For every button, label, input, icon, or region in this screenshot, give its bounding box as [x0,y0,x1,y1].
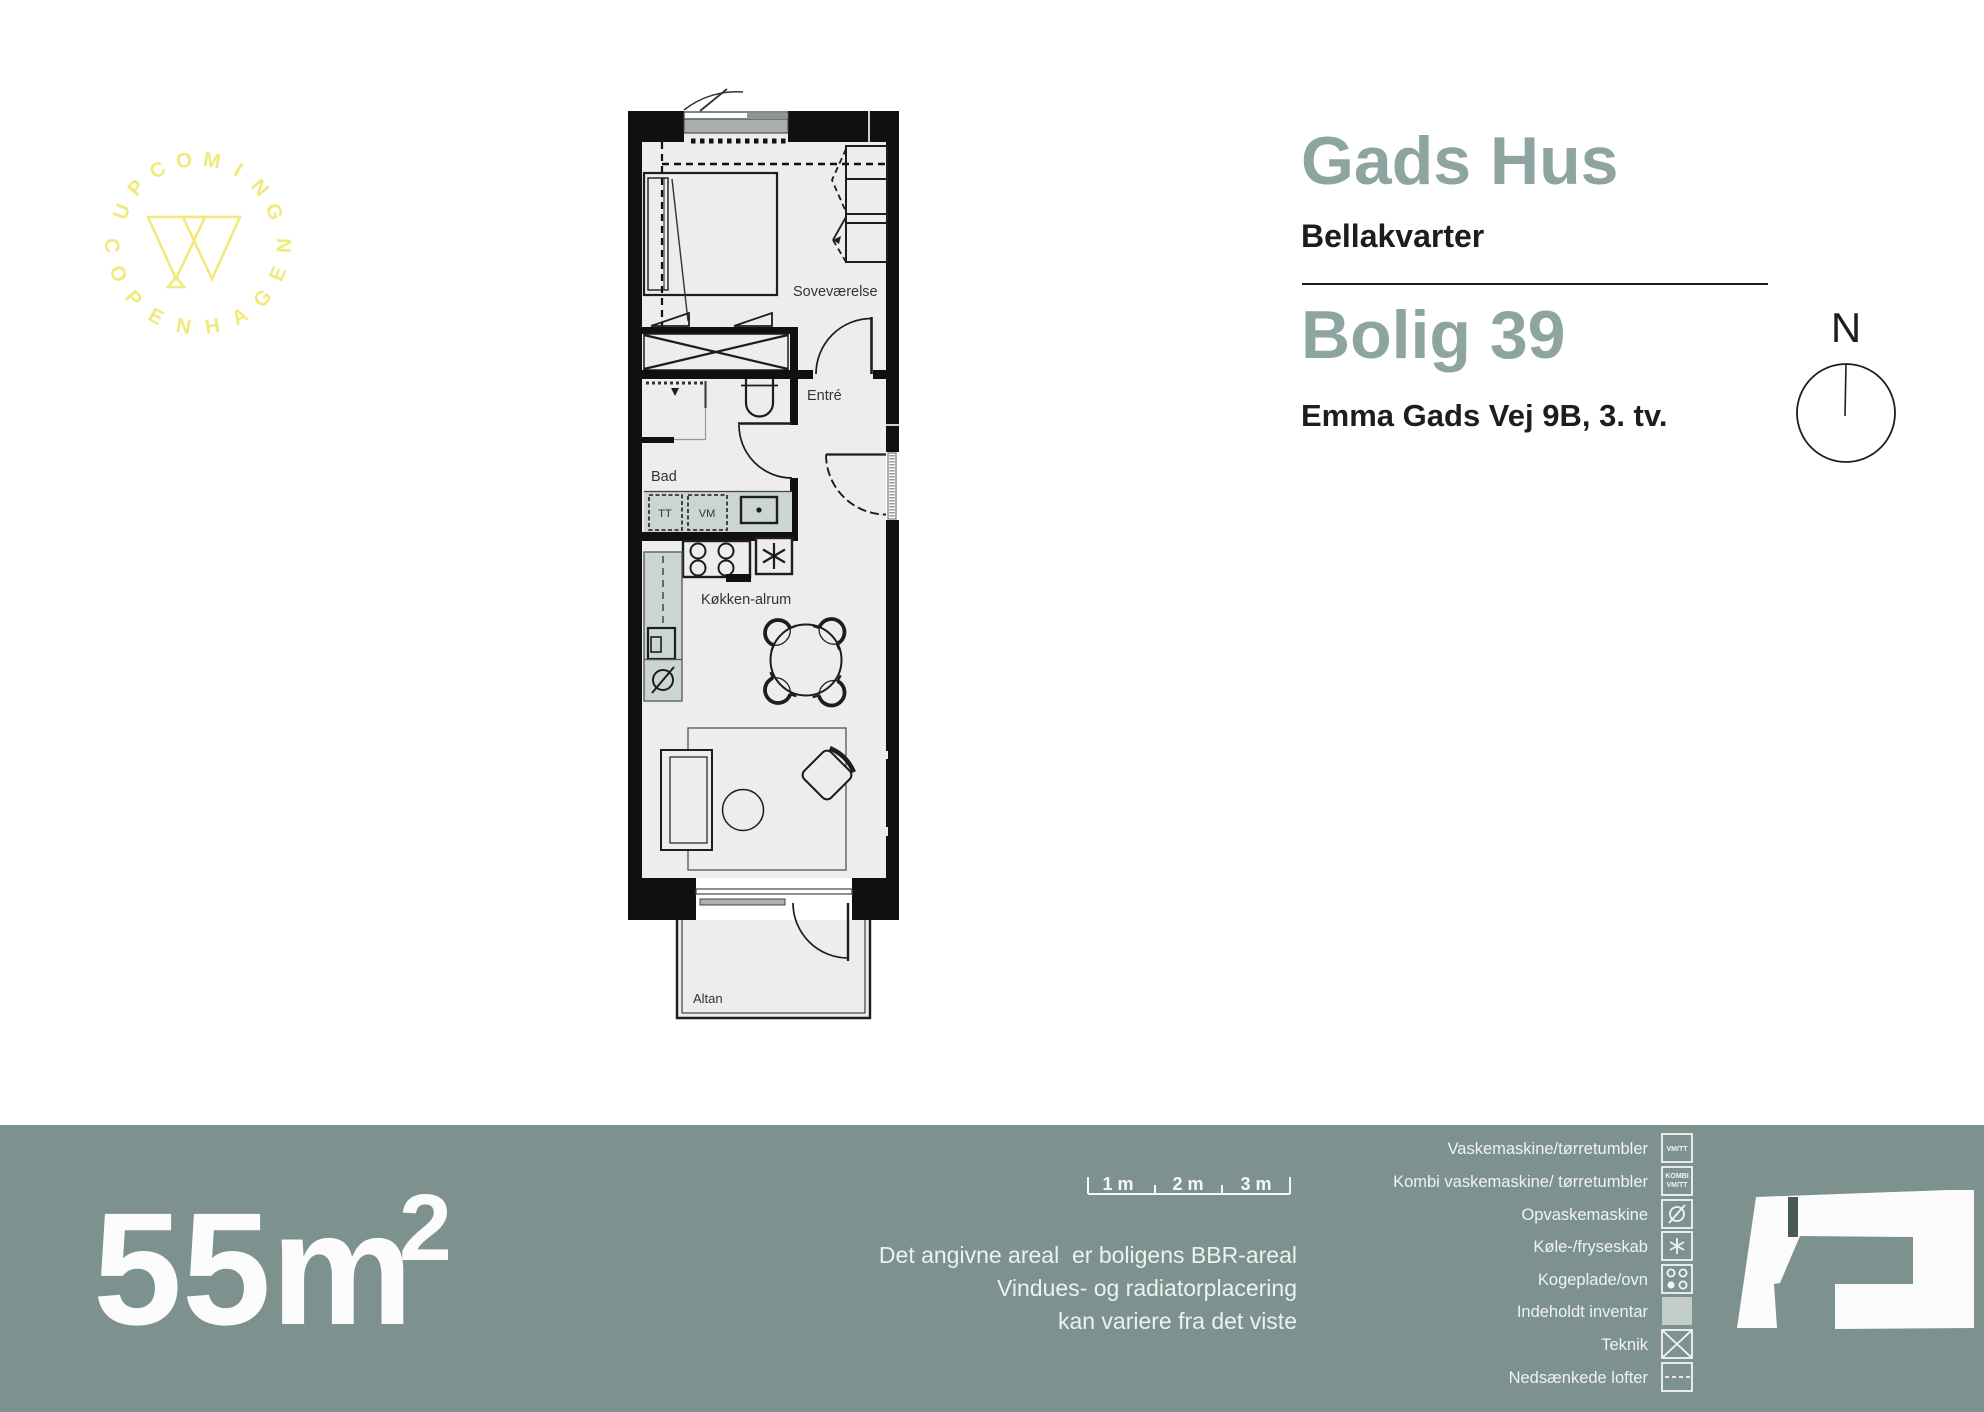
svg-text:N: N [1831,304,1861,351]
svg-text:Vaskemaskine/tørretumbler: Vaskemaskine/tørretumbler [1447,1140,1648,1158]
svg-text:Teknik: Teknik [1601,1336,1649,1354]
svg-text:Kombi vaskemaskine/ tørretumbl: Kombi vaskemaskine/ tørretumbler [1393,1173,1648,1191]
svg-text:KOMBI: KOMBI [1665,1173,1688,1180]
svg-text:Køkken-alrum: Køkken-alrum [701,592,791,608]
svg-text:O: O [174,148,194,173]
svg-text:Bad: Bad [651,469,677,485]
svg-text:C: C [100,238,124,254]
svg-text:Nedsænkede lofter: Nedsænkede lofter [1509,1369,1649,1387]
svg-text:Køle-/fryseskab: Køle-/fryseskab [1533,1238,1648,1256]
svg-text:Soveværelse: Soveværelse [793,284,878,300]
svg-text:VM/TT: VM/TT [1667,1182,1689,1189]
svg-text:A: A [228,303,252,330]
svg-text:2 m: 2 m [1172,1174,1203,1194]
svg-text:E: E [265,263,291,284]
svg-text:Indeholdt inventar: Indeholdt inventar [1517,1303,1649,1321]
svg-text:N: N [273,238,297,254]
svg-text:C: C [146,156,170,183]
svg-text:Kogeplade/ovn: Kogeplade/ovn [1538,1271,1648,1289]
svg-text:H: H [203,314,221,339]
svg-text:VM/TT: VM/TT [1667,1146,1689,1153]
svg-text:P: P [123,175,149,200]
svg-text:Opvaskemaskine: Opvaskemaskine [1521,1206,1648,1224]
svg-text:3 m: 3 m [1240,1174,1271,1194]
svg-text:Entré: Entré [807,388,842,404]
svg-text:O: O [104,262,131,286]
svg-text:N: N [246,175,273,201]
svg-text:TT: TT [658,508,672,520]
svg-text:P: P [120,286,146,312]
svg-text:M: M [202,148,223,174]
svg-text:N: N [174,314,192,339]
svg-text:E: E [144,303,167,330]
svg-text:VM: VM [699,508,716,520]
svg-text:I: I [230,159,246,182]
svg-text:G: G [260,200,287,223]
svg-text:1 m: 1 m [1102,1174,1133,1194]
svg-text:Altan: Altan [693,991,723,1006]
svg-text:U: U [109,201,136,223]
svg-text:G: G [249,285,277,312]
